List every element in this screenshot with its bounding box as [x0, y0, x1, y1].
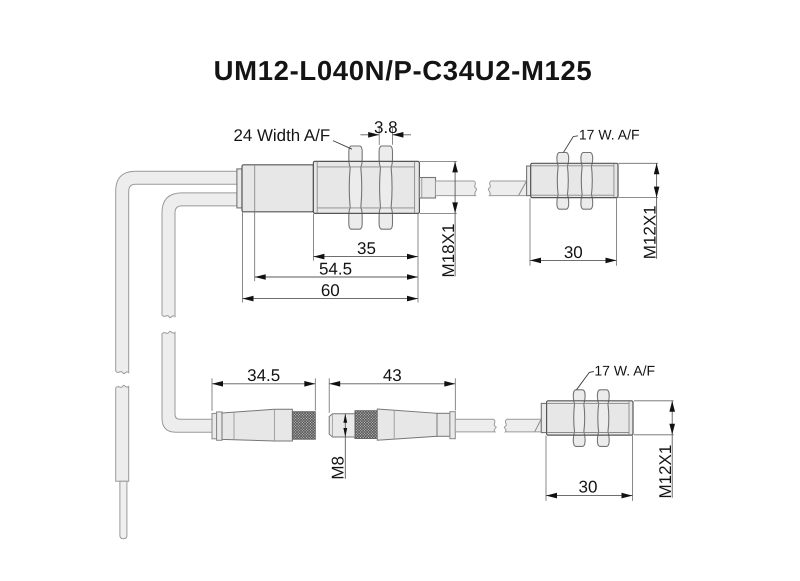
- svg-text:24 Width A/F: 24 Width A/F: [234, 126, 331, 145]
- svg-text:17 W. A/F: 17 W. A/F: [579, 127, 640, 143]
- svg-text:35: 35: [357, 239, 376, 258]
- svg-text:30: 30: [564, 243, 583, 262]
- svg-text:M8: M8: [328, 456, 347, 480]
- svg-text:UM12-L040N/P-C34U2-M125: UM12-L040N/P-C34U2-M125: [214, 55, 593, 86]
- svg-text:M12X1: M12X1: [641, 205, 660, 259]
- svg-text:54.5: 54.5: [319, 259, 352, 278]
- svg-text:3.8: 3.8: [374, 118, 398, 137]
- svg-text:60: 60: [321, 281, 340, 300]
- svg-text:M18X1: M18X1: [439, 224, 458, 278]
- svg-text:43: 43: [383, 366, 402, 385]
- svg-text:30: 30: [579, 478, 598, 497]
- svg-text:M12X1: M12X1: [656, 445, 675, 499]
- svg-text:17 W. A/F: 17 W. A/F: [594, 363, 655, 379]
- svg-text:34.5: 34.5: [247, 366, 280, 385]
